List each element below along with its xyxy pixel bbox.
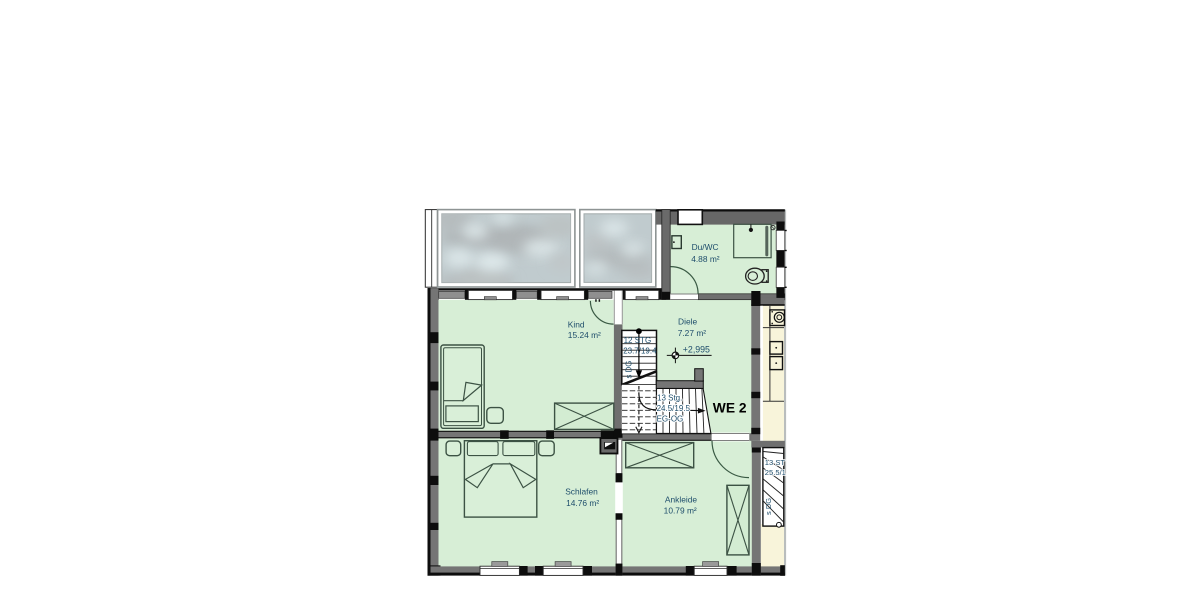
svg-text:7.27 m²: 7.27 m² [678, 328, 707, 338]
svg-text:Kind: Kind [568, 319, 585, 329]
svg-text:14.76 m²: 14.76 m² [566, 498, 599, 508]
svg-text:Du/WC: Du/WC [692, 242, 719, 252]
svg-text:15.24 m²: 15.24 m² [568, 330, 601, 340]
svg-text:s DG: s DG [625, 361, 634, 379]
svg-text:13 ST: 13 ST [765, 458, 786, 467]
svg-text:24.5/19.5: 24.5/19.5 [657, 404, 691, 413]
svg-text:WE 2: WE 2 [713, 401, 747, 416]
svg-text:Diele: Diele [678, 317, 697, 327]
svg-text:10.79 m²: 10.79 m² [664, 505, 697, 515]
svg-text:EG-OG: EG-OG [657, 414, 684, 423]
svg-text:25.5/1: 25.5/1 [765, 468, 786, 477]
svg-text:13 Stg.: 13 Stg. [657, 393, 682, 402]
svg-text:+2,995: +2,995 [683, 344, 710, 354]
svg-text:4.88 m²: 4.88 m² [691, 254, 720, 264]
svg-text:Schlafen: Schlafen [565, 487, 598, 497]
svg-text:s DG: s DG [764, 498, 773, 515]
svg-text:23.7/19.4: 23.7/19.4 [623, 347, 657, 356]
svg-text:12 STG: 12 STG [624, 336, 652, 345]
svg-text:Ankleide: Ankleide [665, 494, 697, 504]
